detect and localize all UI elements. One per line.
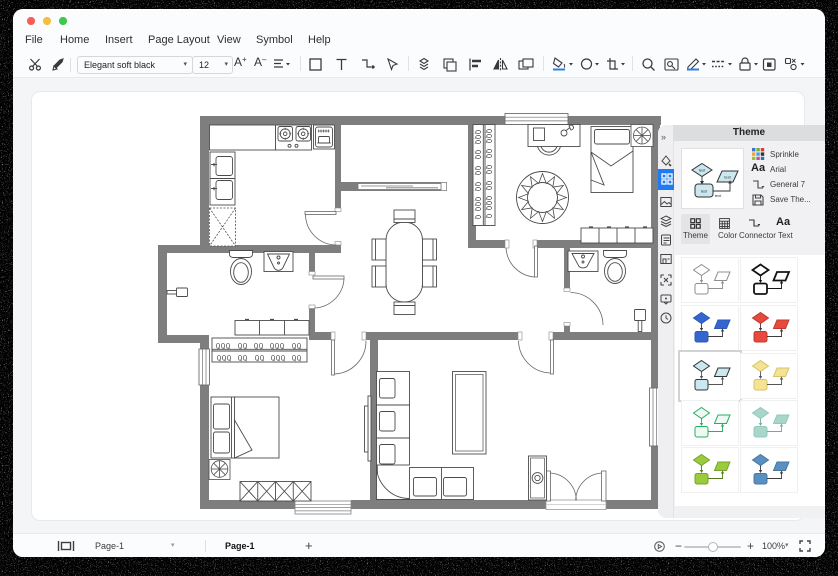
svg-text:text: text (715, 193, 722, 198)
svg-text:test: test (701, 189, 708, 194)
svg-text:test: test (724, 175, 731, 180)
svg-text:test: test (699, 168, 706, 173)
